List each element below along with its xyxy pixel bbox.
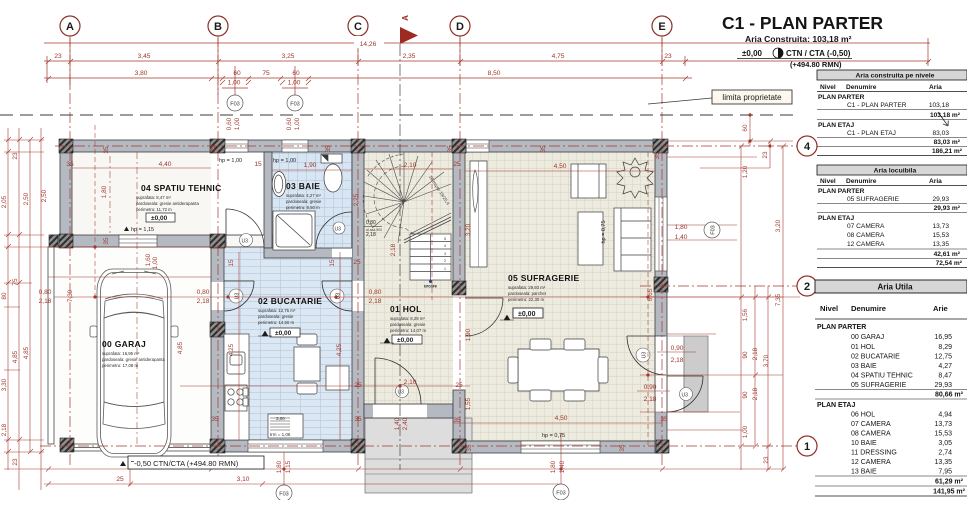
svg-text:4,25: 4,25 — [228, 343, 235, 356]
svg-text:35: 35 — [210, 145, 217, 153]
svg-text:35: 35 — [619, 444, 626, 452]
svg-text:186,21 m²: 186,21 m² — [932, 148, 963, 155]
svg-text:±0,00: ±0,00 — [151, 215, 168, 222]
svg-text:60: 60 — [233, 70, 241, 77]
svg-text:4: 4 — [804, 141, 811, 153]
svg-text:Denumire: Denumire — [846, 178, 877, 185]
svg-text:8,29: 8,29 — [938, 344, 952, 351]
svg-text:06 HOL: 06 HOL — [851, 412, 875, 419]
svg-text:05 SUFRAGERIE: 05 SUFRAGERIE — [851, 382, 907, 389]
svg-text:perimetru: 14,50 m: perimetru: 14,50 m — [258, 320, 294, 325]
svg-text:1,00: 1,00 — [234, 117, 241, 130]
svg-text:4,75: 4,75 — [552, 53, 565, 60]
svg-text:03 BAIE: 03 BAIE — [851, 363, 877, 370]
svg-text:12 CAMERA: 12 CAMERA — [847, 241, 885, 248]
svg-text:1,00: 1,00 — [742, 425, 749, 438]
svg-text:2,18: 2,18 — [671, 357, 684, 364]
svg-text:pardoseala: gresie: pardoseala: gresie — [258, 314, 294, 319]
svg-text:25: 25 — [116, 476, 124, 483]
svg-text:3,20: 3,20 — [775, 219, 782, 232]
svg-text:CTN / CTA (-0,50): CTN / CTA (-0,50) — [786, 49, 851, 58]
svg-text:hp = 0,75: hp = 0,75 — [542, 433, 565, 439]
svg-text:29,93 m²: 29,93 m² — [934, 205, 961, 212]
svg-text:25: 25 — [353, 259, 361, 266]
svg-text:0,80: 0,80 — [366, 220, 376, 226]
svg-text:1,80: 1,80 — [101, 185, 108, 198]
svg-text:2,18: 2,18 — [369, 298, 382, 305]
svg-text:PLAN PARTER: PLAN PARTER — [818, 94, 865, 101]
svg-text:35: 35 — [654, 152, 661, 160]
svg-text:4,40: 4,40 — [159, 161, 172, 168]
svg-text:90: 90 — [742, 351, 749, 359]
svg-text:Aria locuibila: Aria locuibila — [874, 168, 917, 175]
svg-text:(+494.80 RMN): (+494.80 RMN) — [790, 60, 842, 69]
svg-text:4,85: 4,85 — [177, 341, 184, 354]
svg-text:1,90: 1,90 — [465, 328, 472, 341]
svg-text:perimetru: 8,50 m: perimetru: 8,50 m — [286, 205, 320, 210]
svg-text:00 GARAJ: 00 GARAJ — [102, 339, 146, 349]
svg-text:35: 35 — [540, 145, 547, 153]
svg-text:15: 15 — [254, 161, 262, 168]
svg-text:13,35: 13,35 — [932, 241, 949, 248]
svg-text:6,65: 6,65 — [647, 288, 654, 301]
svg-text:0,80: 0,80 — [369, 289, 382, 296]
svg-text:suprafata: 8,47 m²: suprafata: 8,47 m² — [136, 195, 171, 200]
svg-text:35: 35 — [660, 416, 668, 423]
svg-text:80: 80 — [1, 292, 8, 300]
svg-text:25: 25 — [453, 161, 461, 168]
svg-text:2,25: 2,25 — [353, 193, 360, 206]
svg-text:03 BAIE: 03 BAIE — [286, 181, 320, 191]
svg-text:pardoseala: gresie antiderapan: pardoseala: gresie antiderapanta — [136, 201, 199, 206]
svg-text:U3: U3 — [242, 238, 249, 244]
svg-text:1,60: 1,60 — [145, 253, 152, 266]
svg-text:PLAN ETAJ: PLAN ETAJ — [817, 402, 855, 409]
svg-text:35: 35 — [325, 145, 332, 153]
svg-text:2,74: 2,74 — [938, 450, 952, 457]
svg-text:15: 15 — [228, 259, 235, 267]
svg-text:±0,00: ±0,00 — [518, 311, 536, 318]
svg-text:3,10: 3,10 — [237, 476, 250, 483]
svg-text:suprafata: 12,75 m²: suprafata: 12,75 m² — [258, 308, 296, 313]
svg-text:1,55: 1,55 — [465, 397, 472, 410]
svg-text:2,10: 2,10 — [404, 379, 417, 386]
svg-text:1,00: 1,00 — [288, 80, 301, 87]
svg-text:2,18: 2,18 — [39, 298, 52, 305]
svg-text:2: 2 — [804, 281, 810, 293]
svg-text:1,00: 1,00 — [228, 80, 241, 87]
svg-text:pardoseala: parchet: pardoseala: parchet — [508, 291, 547, 296]
svg-text:-0,50 CTN/CTA (+494.80 RMN): -0,50 CTN/CTA (+494.80 RMN) — [134, 459, 239, 468]
svg-text:U3: U3 — [682, 392, 689, 398]
svg-text:23: 23 — [54, 53, 62, 60]
svg-text:35: 35 — [103, 146, 110, 154]
svg-text:35: 35 — [453, 417, 461, 424]
svg-text:23: 23 — [763, 456, 770, 464]
svg-text:trm = 1,06: trm = 1,06 — [270, 432, 291, 437]
svg-text:15,53: 15,53 — [932, 232, 949, 239]
svg-text:23: 23 — [12, 458, 19, 466]
svg-text:2,40: 2,40 — [402, 417, 409, 430]
svg-text:4,85: 4,85 — [23, 346, 30, 359]
svg-text:08 CAMERA: 08 CAMERA — [847, 232, 885, 239]
svg-text:1,20: 1,20 — [742, 165, 749, 178]
svg-text:Nivel: Nivel — [820, 84, 836, 91]
svg-text:U3: U3 — [234, 293, 240, 300]
svg-text:suprafata: 29,93 m²: suprafata: 29,93 m² — [508, 285, 546, 290]
svg-text:suprafata: 4,27 m²: suprafata: 4,27 m² — [286, 193, 321, 198]
svg-text:hp = 1,00: hp = 1,00 — [273, 158, 296, 164]
svg-text:4,94: 4,94 — [938, 412, 952, 419]
svg-text:02 BUCATARIE: 02 BUCATARIE — [258, 296, 322, 306]
svg-text:Denumire: Denumire — [846, 84, 877, 91]
svg-text:U3: U3 — [641, 352, 647, 359]
svg-text:B: B — [214, 21, 222, 33]
svg-text:0,80: 0,80 — [197, 289, 210, 296]
svg-text:35: 35 — [354, 416, 362, 423]
svg-text:16,95: 16,95 — [934, 334, 952, 341]
svg-text:00 GARAJ: 00 GARAJ — [851, 334, 884, 341]
svg-text:72,54 m²: 72,54 m² — [936, 260, 963, 267]
svg-text:103,18 m²: 103,18 m² — [930, 112, 961, 119]
svg-text:4: 4 — [444, 244, 446, 248]
svg-text:3,70: 3,70 — [763, 354, 770, 367]
svg-text:pardoseala: gresie: pardoseala: gresie — [390, 322, 426, 327]
svg-text:35: 35 — [103, 237, 110, 245]
svg-text:perimetru: 11,72 m: perimetru: 11,72 m — [136, 207, 172, 212]
svg-text:al aaa-900: al aaa-900 — [366, 228, 382, 232]
svg-text:C1 - PLAN PARTER: C1 - PLAN PARTER — [722, 13, 883, 33]
svg-text:PLAN PARTER: PLAN PARTER — [817, 324, 866, 331]
svg-text:Aria construita pe nivele: Aria construita pe nivele — [856, 73, 935, 80]
svg-text:±0,00: ±0,00 — [397, 337, 414, 344]
svg-text:1,80: 1,80 — [550, 460, 557, 473]
svg-text:0,60: 0,60 — [286, 117, 293, 130]
svg-text:Aria: Aria — [929, 84, 942, 91]
svg-text:2,18: 2,18 — [644, 396, 657, 403]
svg-text:Denumire: Denumire — [851, 304, 886, 313]
svg-text:3,20: 3,20 — [465, 223, 472, 236]
svg-text:15: 15 — [329, 259, 336, 267]
svg-text:F03: F03 — [230, 102, 239, 108]
svg-text:1,40: 1,40 — [394, 417, 401, 430]
svg-text:4,85: 4,85 — [12, 350, 19, 363]
svg-text:8,50: 8,50 — [488, 70, 501, 77]
svg-text:perimetru: 22,30 m: perimetru: 22,30 m — [508, 297, 544, 302]
svg-text:3,30: 3,30 — [1, 378, 8, 391]
svg-text:Aria: Aria — [929, 178, 942, 185]
svg-text:7,30: 7,30 — [67, 289, 74, 302]
svg-text:04 SPATIU TEHNIC: 04 SPATIU TEHNIC — [851, 373, 913, 380]
svg-text:13,73: 13,73 — [932, 223, 949, 230]
svg-text:2,18: 2,18 — [197, 298, 210, 305]
svg-text:3,05: 3,05 — [938, 440, 952, 447]
svg-text:1: 1 — [444, 267, 446, 271]
svg-text:A: A — [66, 21, 74, 33]
svg-text:F03: F03 — [290, 102, 299, 108]
svg-text:C: C — [354, 21, 362, 33]
svg-text:23: 23 — [762, 151, 769, 159]
svg-text:23: 23 — [664, 53, 672, 60]
svg-text:75: 75 — [12, 278, 19, 286]
svg-text:83,03: 83,03 — [932, 130, 949, 137]
svg-text:8,47: 8,47 — [938, 373, 952, 380]
svg-text:7,95: 7,95 — [938, 469, 952, 476]
svg-text:08 CAMERA: 08 CAMERA — [851, 431, 891, 438]
svg-text:Arie: Arie — [933, 304, 948, 313]
svg-text:23: 23 — [12, 152, 19, 160]
svg-text:02 BUCATARIE: 02 BUCATARIE — [851, 354, 900, 361]
svg-text:25: 25 — [354, 382, 362, 389]
svg-text:1: 1 — [804, 441, 810, 453]
svg-text:14,26: 14,26 — [360, 41, 377, 48]
svg-text:42,61 m²: 42,61 m² — [934, 251, 961, 258]
svg-text:80,66 m²: 80,66 m² — [935, 392, 964, 399]
svg-text:83,03 m²: 83,03 m² — [934, 139, 961, 146]
svg-text:141,95 m²: 141,95 m² — [933, 489, 966, 496]
svg-text:12,75: 12,75 — [934, 354, 952, 361]
svg-text:F03: F03 — [711, 225, 717, 234]
svg-text:Aria Utila: Aria Utila — [877, 283, 913, 292]
svg-text:±0,00: ±0,00 — [275, 330, 292, 337]
svg-text:04 SPATIU TEHNIC: 04 SPATIU TEHNIC — [141, 183, 222, 193]
svg-text:pardoseala: gresie antiderapan: pardoseala: gresie antiderapanta — [102, 357, 165, 362]
svg-text:4,25: 4,25 — [336, 343, 343, 356]
svg-text:61,29 m²: 61,29 m² — [935, 479, 964, 486]
svg-text:3,45: 3,45 — [138, 53, 151, 60]
svg-text:01 HOL: 01 HOL — [390, 304, 422, 314]
svg-text:2,50: 2,50 — [41, 189, 48, 202]
svg-text:35: 35 — [447, 145, 454, 153]
svg-text:2,18: 2,18 — [1, 423, 8, 436]
svg-text:35: 35 — [66, 161, 74, 168]
svg-text:2,10: 2,10 — [404, 162, 417, 169]
svg-text:±0,00: ±0,00 — [742, 49, 763, 58]
svg-text:4,27: 4,27 — [938, 363, 952, 370]
svg-text:hp = 1,00: hp = 1,00 — [219, 158, 242, 164]
svg-text:C1 - PLAN PARTER: C1 - PLAN PARTER — [847, 102, 907, 109]
svg-text:01 HOL: 01 HOL — [851, 344, 875, 351]
svg-text:pardoseala: gresie: pardoseala: gresie — [286, 199, 322, 204]
svg-text:13 BAIE: 13 BAIE — [851, 469, 877, 476]
svg-text:suprafata: 8,29 m²: suprafata: 8,29 m² — [390, 316, 425, 321]
svg-text:13,73: 13,73 — [934, 421, 952, 428]
svg-text:A: A — [401, 15, 410, 21]
svg-text:35: 35 — [211, 416, 219, 423]
svg-text:90: 90 — [742, 391, 749, 399]
svg-text:103,18: 103,18 — [929, 102, 950, 109]
svg-text:05 SUFRAGERIE: 05 SUFRAGERIE — [508, 273, 579, 283]
svg-text:29,93: 29,93 — [934, 382, 952, 389]
svg-text:13,35: 13,35 — [934, 459, 952, 466]
svg-text:1,80: 1,80 — [675, 224, 688, 231]
svg-text:limita proprietate: limita proprietate — [722, 93, 782, 102]
svg-text:perimetru: 14,07 m: perimetru: 14,07 m — [390, 328, 426, 333]
svg-text:2,18: 2,18 — [366, 232, 376, 238]
svg-text:F03: F03 — [556, 491, 565, 497]
svg-text:4,50: 4,50 — [554, 163, 567, 170]
svg-text:F03: F03 — [279, 492, 288, 498]
svg-text:0,80: 0,80 — [39, 289, 52, 296]
svg-text:Nivel: Nivel — [820, 178, 836, 185]
svg-text:D: D — [456, 21, 464, 33]
svg-text:suprafata: 16,95 m²: suprafata: 16,95 m² — [102, 351, 140, 356]
svg-text:Nivel: Nivel — [820, 304, 838, 313]
svg-text:2,18: 2,18 — [390, 243, 397, 256]
svg-text:Aria Construita: 103,18 m²: Aria Construita: 103,18 m² — [745, 34, 852, 44]
svg-text:1,90: 1,90 — [304, 162, 317, 169]
svg-text:1,56: 1,56 — [742, 308, 749, 321]
svg-text:15,53: 15,53 — [934, 431, 952, 438]
svg-text:E: E — [658, 21, 665, 33]
svg-text:0,90: 0,90 — [671, 345, 684, 352]
svg-text:2,05: 2,05 — [1, 195, 8, 208]
svg-text:25: 25 — [455, 382, 463, 389]
svg-text:2: 2 — [444, 259, 446, 263]
svg-text:U3: U3 — [335, 226, 342, 232]
svg-text:07 CAMERA: 07 CAMERA — [851, 421, 891, 428]
svg-text:PLAN ETAJ: PLAN ETAJ — [818, 215, 854, 222]
svg-text:3: 3 — [444, 252, 446, 256]
svg-text:7,35: 7,35 — [775, 293, 782, 306]
svg-text:PLAN ETAJ: PLAN ETAJ — [818, 122, 854, 129]
svg-text:5: 5 — [444, 237, 446, 241]
svg-text:2,35: 2,35 — [403, 53, 416, 60]
svg-text:U3: U3 — [398, 389, 405, 395]
svg-text:35: 35 — [466, 444, 473, 452]
svg-text:60: 60 — [292, 70, 300, 77]
svg-text:2,50: 2,50 — [23, 192, 30, 205]
svg-text:11 DRESSING: 11 DRESSING — [851, 450, 897, 457]
svg-text:3,80: 3,80 — [135, 70, 148, 77]
svg-text:PLAN PARTER: PLAN PARTER — [818, 188, 865, 195]
svg-text:urcare: urcare — [424, 284, 437, 289]
svg-text:2,18: 2,18 — [752, 347, 759, 360]
svg-text:0,60: 0,60 — [226, 117, 233, 130]
svg-text:07 CAMERA: 07 CAMERA — [847, 223, 885, 230]
svg-text:1,00: 1,00 — [152, 256, 159, 269]
svg-text:12 CAMERA: 12 CAMERA — [851, 459, 891, 466]
svg-text:perimetru: 17,08 m: perimetru: 17,08 m — [102, 363, 138, 368]
svg-text:0,90: 0,90 — [644, 384, 657, 391]
svg-text:C1 - PLAN ETAJ: C1 - PLAN ETAJ — [847, 130, 896, 137]
svg-text:4,50: 4,50 — [555, 415, 568, 422]
svg-text:29,93: 29,93 — [932, 196, 949, 203]
svg-text:10 BAIE: 10 BAIE — [851, 440, 877, 447]
svg-text:hp = 1,15: hp = 1,15 — [131, 227, 154, 233]
svg-text:2,18: 2,18 — [752, 387, 759, 400]
svg-text:1,00: 1,00 — [294, 117, 301, 130]
svg-text:75: 75 — [262, 70, 270, 77]
svg-text:60: 60 — [742, 124, 749, 132]
svg-text:1,40: 1,40 — [675, 234, 688, 241]
svg-text:hp = 0,75: hp = 0,75 — [601, 220, 607, 243]
svg-text:3,25: 3,25 — [282, 53, 295, 60]
svg-text:1,15: 1,15 — [285, 460, 292, 473]
svg-text:1,80: 1,80 — [276, 460, 283, 473]
svg-text:3,00: 3,00 — [276, 416, 285, 421]
svg-text:05 SUFRAGERIE: 05 SUFRAGERIE — [847, 196, 900, 203]
svg-text:1,40: 1,40 — [559, 460, 566, 473]
